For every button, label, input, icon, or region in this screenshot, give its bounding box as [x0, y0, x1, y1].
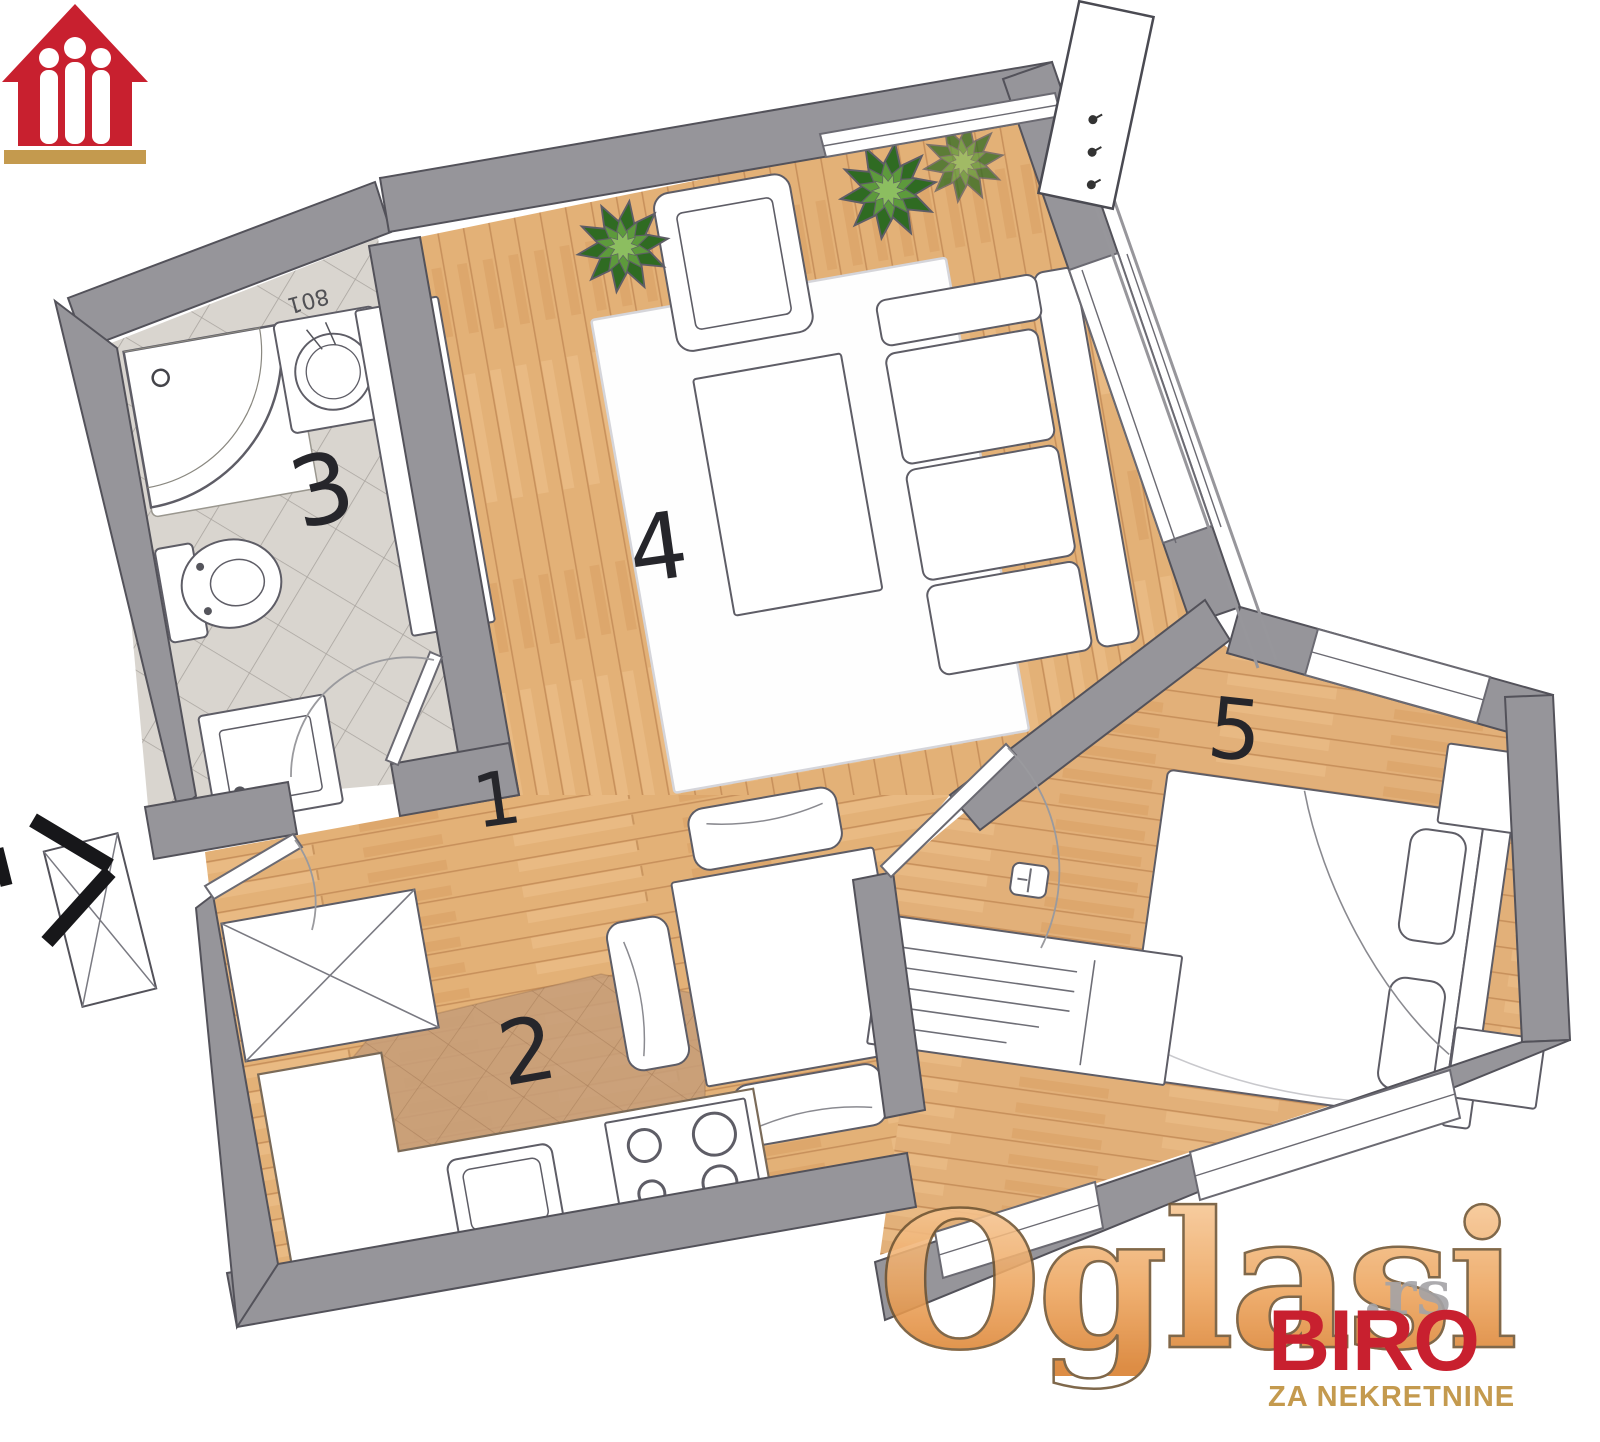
floor-plan-image: 1 2 3 4 5 801 Oglasi .rs BIRO ZA NEKRETN… — [0, 0, 1600, 1442]
armchair — [652, 172, 816, 354]
light-switch-box — [1009, 862, 1049, 899]
room-label-bedroom: 5 — [1203, 678, 1266, 781]
floor-plan-drawing — [0, 0, 1600, 1442]
